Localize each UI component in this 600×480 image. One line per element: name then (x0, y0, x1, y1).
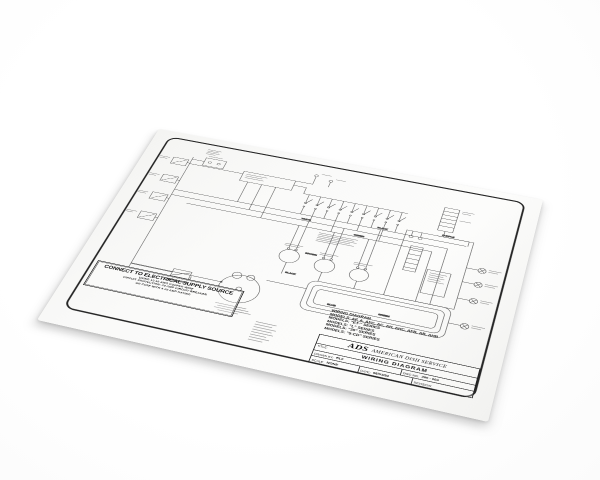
junction-box (168, 151, 347, 231)
wire-label-blue: BLUE (326, 304, 336, 308)
wire-label-brown: BROWN (305, 253, 318, 257)
scale-label: SCALE: (311, 358, 324, 364)
supply-lead-block (190, 148, 231, 169)
wiring-diagram-sheet: BLACK WHITE GREEN PURPLE BROWN (37, 129, 543, 422)
solenoid-valves: BROWN BLACK (271, 214, 386, 291)
wire-label-white: WHITE (301, 218, 312, 222)
wire-label-green: GREEN (353, 234, 365, 238)
title-label: TITLE: (317, 344, 328, 349)
wire-label-black-2: BLACK (285, 271, 297, 276)
date-label: DATE: (360, 369, 371, 374)
product-photo-stage: BLACK WHITE GREEN PURPLE BROWN (0, 0, 600, 480)
left-switch-column (95, 151, 194, 267)
wire-label-green-2: GREEN (378, 314, 391, 318)
legend-column (248, 321, 278, 344)
scale-value: NONE (326, 362, 339, 367)
